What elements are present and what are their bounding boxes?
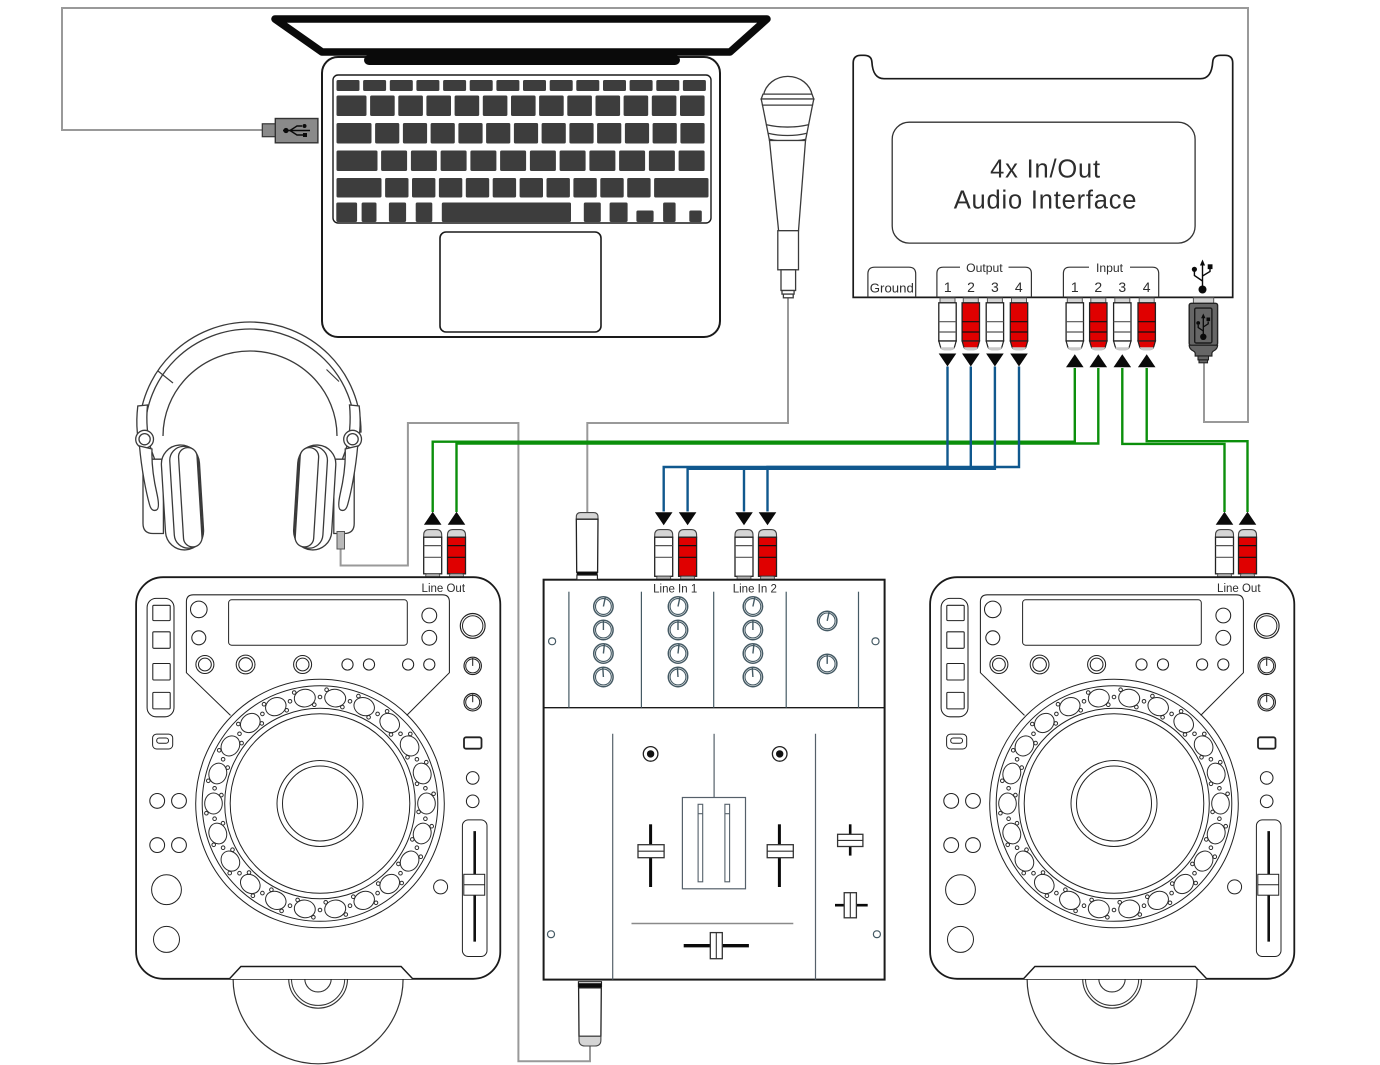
svg-text:3: 3 <box>991 279 999 295</box>
svg-text:Line Out: Line Out <box>422 583 466 595</box>
svg-text:3: 3 <box>1118 279 1126 295</box>
svg-text:1: 1 <box>1071 279 1079 295</box>
svg-text:4: 4 <box>1015 279 1023 295</box>
svg-text:Line In 1: Line In 1 <box>653 583 697 595</box>
svg-text:Line Out: Line Out <box>1217 583 1261 595</box>
svg-text:Line In 2: Line In 2 <box>733 583 777 595</box>
svg-text:4x In/Out: 4x In/Out <box>990 156 1101 184</box>
svg-text:2: 2 <box>967 279 975 295</box>
svg-text:4: 4 <box>1143 279 1151 295</box>
svg-text:Output: Output <box>966 261 1003 275</box>
svg-text:Input: Input <box>1096 261 1124 275</box>
svg-text:Ground: Ground <box>870 281 914 296</box>
svg-text:1: 1 <box>944 279 952 295</box>
svg-text:Audio Interface: Audio Interface <box>954 187 1138 215</box>
svg-text:2: 2 <box>1094 279 1102 295</box>
